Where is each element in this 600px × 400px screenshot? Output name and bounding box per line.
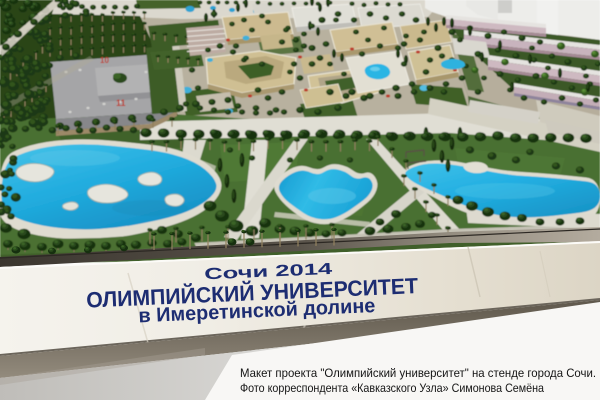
svg-text:Макет проекта "Олимпийский уни: Макет проекта "Олимпийский университет" … — [240, 366, 596, 380]
svg-text:Фото корреспондента «Кавказско: Фото корреспондента «Кавказского Узла» С… — [240, 381, 544, 395]
